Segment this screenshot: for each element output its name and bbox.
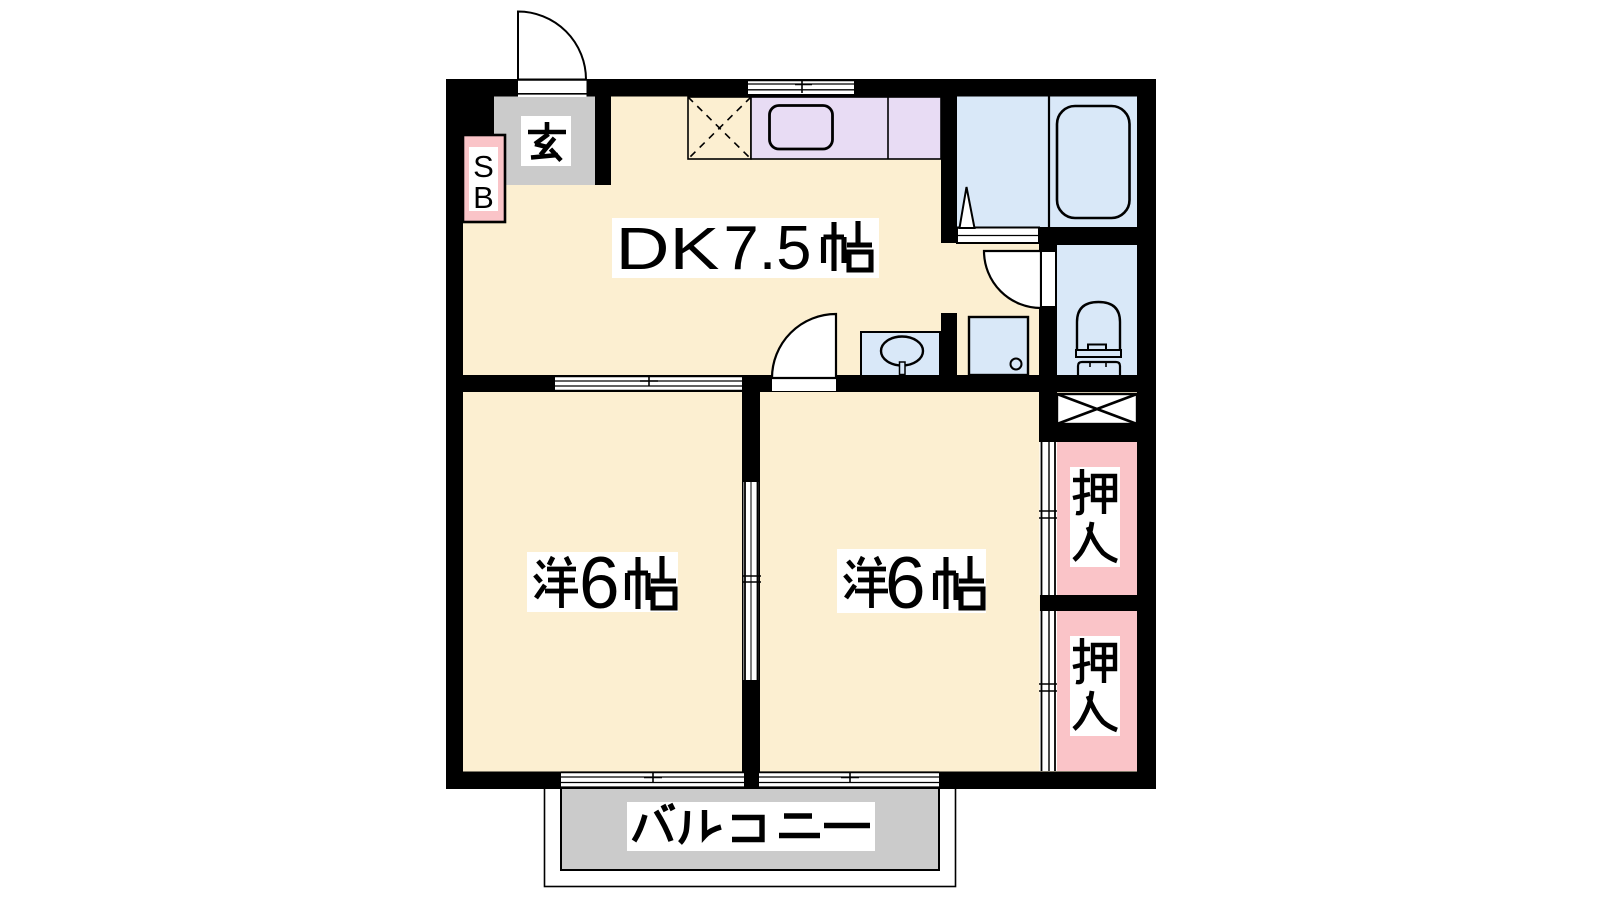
svg-text:B: B <box>473 180 494 215</box>
svg-text:7.5: 7.5 <box>724 214 812 283</box>
svg-text:6: 6 <box>579 543 620 624</box>
svg-text:DK: DK <box>616 216 720 282</box>
svg-text:6: 6 <box>885 543 926 624</box>
svg-text:S: S <box>473 149 494 184</box>
